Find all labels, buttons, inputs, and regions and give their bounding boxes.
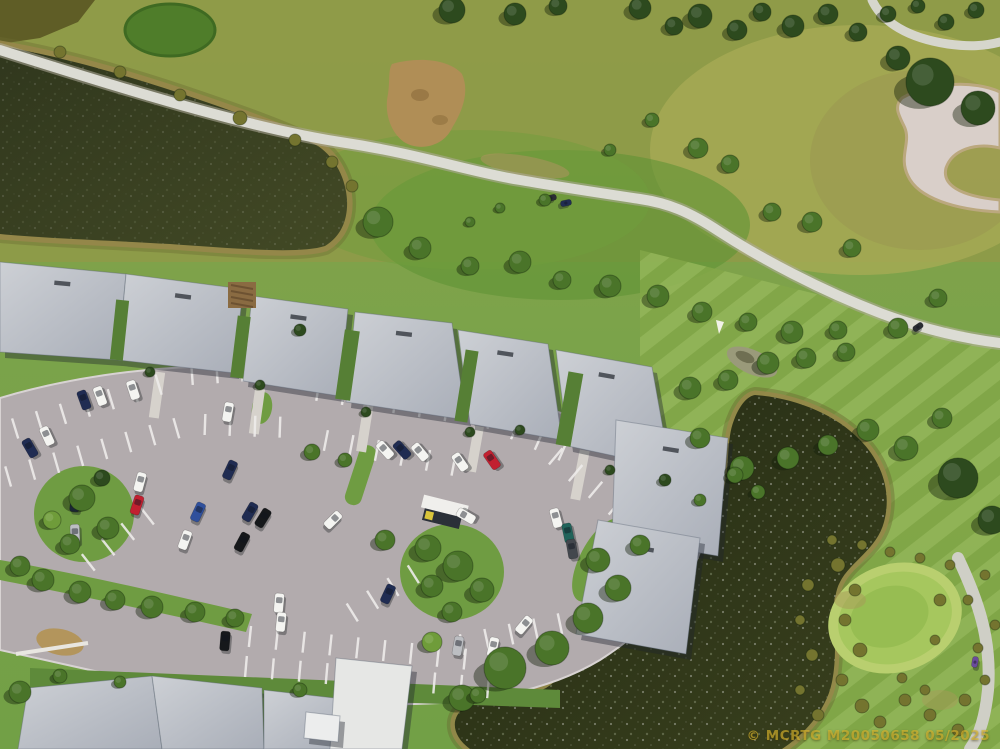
car-windshield [568, 543, 575, 550]
condo-roof [152, 676, 264, 749]
shrub [980, 675, 990, 685]
tree-highlight [452, 688, 464, 700]
shrub [934, 594, 946, 606]
tree-highlight [667, 19, 675, 27]
tree-highlight [72, 584, 82, 594]
grass-mound [125, 4, 215, 56]
shrub [839, 614, 851, 626]
tree-highlight [695, 305, 704, 314]
tree-highlight [608, 578, 620, 590]
tree-highlight [306, 446, 313, 453]
tree-highlight [661, 476, 666, 481]
tree-highlight [889, 49, 900, 60]
tree-highlight [45, 513, 53, 521]
tree-highlight [424, 578, 434, 588]
tree-highlight [13, 559, 22, 568]
tree-highlight [940, 16, 947, 23]
tree-highlight [730, 23, 739, 32]
shrub [963, 595, 973, 605]
shrub [885, 547, 895, 557]
aerial-scene [0, 0, 1000, 749]
shrub [114, 66, 126, 78]
shrub [233, 111, 247, 125]
tree-highlight [839, 345, 847, 353]
tree-highlight [472, 689, 479, 696]
tree-highlight [367, 211, 381, 225]
tree-highlight [943, 463, 961, 481]
condo-roof [458, 330, 562, 440]
shrub [874, 716, 886, 728]
shrub [930, 635, 940, 645]
condo-roof [304, 712, 340, 742]
shrub [802, 579, 814, 591]
condo-roof [18, 676, 162, 749]
shrub [980, 570, 990, 580]
tree-highlight [821, 438, 830, 447]
tree-highlight [851, 25, 859, 33]
aerial-photo: © MCRTG M20050658 05/2025 [0, 0, 1000, 749]
tree-highlight [935, 411, 944, 420]
tree-highlight [425, 635, 434, 644]
tree-highlight [780, 450, 790, 460]
shrub [806, 649, 818, 661]
tree-highlight [913, 1, 919, 7]
tree-highlight [12, 684, 22, 694]
tree-highlight [691, 7, 702, 18]
tree-highlight [784, 324, 794, 334]
tree-highlight [602, 278, 612, 288]
tree-highlight [606, 466, 611, 471]
dirt-spot [432, 115, 448, 125]
tree-highlight [633, 538, 642, 547]
shrub [855, 699, 869, 713]
tree-highlight [753, 487, 759, 493]
tree-highlight [63, 537, 72, 546]
tree-highlight [144, 599, 154, 609]
tree-highlight [755, 5, 763, 13]
car-windshield [222, 635, 229, 641]
tree-highlight [100, 520, 110, 530]
tree-highlight [496, 204, 501, 209]
stall-line [255, 416, 256, 437]
shrub [812, 709, 824, 721]
tree-highlight [729, 469, 736, 476]
tree-highlight [632, 0, 642, 10]
tree-highlight [473, 581, 484, 592]
tree-highlight [412, 240, 422, 250]
tree-highlight [362, 408, 367, 413]
tree-highlight [72, 488, 84, 500]
tree-highlight [723, 157, 731, 165]
tree-highlight [442, 0, 454, 12]
tree-highlight [765, 205, 773, 213]
shrub [920, 685, 930, 695]
tree-highlight [589, 551, 600, 562]
tree-highlight [516, 426, 521, 431]
tree-highlight [55, 671, 61, 677]
stall-line [280, 417, 281, 438]
shrub [973, 643, 983, 653]
tree-highlight [340, 455, 346, 461]
shrub [849, 584, 861, 596]
condo-roof [0, 262, 126, 360]
tree-highlight [489, 652, 508, 671]
tree-highlight [721, 373, 730, 382]
trellis [228, 282, 256, 308]
tree-highlight [965, 95, 980, 110]
tree-highlight [897, 439, 908, 450]
shrub [795, 615, 805, 625]
shrub [346, 180, 358, 192]
condo-roof [118, 274, 243, 373]
tree-highlight [295, 685, 301, 691]
tree-highlight [647, 115, 653, 121]
tree-highlight [146, 368, 151, 373]
shrub [831, 558, 845, 572]
tree-highlight [108, 593, 117, 602]
tree-highlight [418, 538, 430, 550]
tree-highlight [256, 381, 261, 386]
tree-highlight [682, 380, 692, 390]
tree-highlight [228, 611, 236, 619]
tree-highlight [96, 472, 103, 479]
tree-highlight [512, 254, 522, 264]
car-windshield [72, 528, 79, 534]
tree-highlight [799, 351, 808, 360]
tree-highlight [650, 288, 660, 298]
tree-highlight [785, 18, 795, 28]
tree-highlight [296, 326, 301, 331]
shrub [915, 553, 925, 563]
tree-highlight [445, 605, 454, 614]
shrub [924, 709, 936, 721]
tree-highlight [466, 428, 471, 433]
shrub [990, 620, 1000, 630]
shrub [857, 540, 867, 550]
tree-highlight [463, 259, 471, 267]
shrub [899, 694, 911, 706]
shrub [54, 46, 66, 58]
tree-highlight [741, 315, 749, 323]
car-windshield [225, 406, 232, 413]
tree-highlight [188, 605, 197, 614]
shrub [326, 156, 338, 168]
shrub [952, 724, 964, 736]
tree-highlight [805, 215, 814, 224]
shrub [945, 560, 955, 570]
car-windshield [276, 597, 283, 603]
tree-highlight [860, 422, 870, 432]
tree-highlight [821, 7, 830, 16]
tree-highlight [845, 241, 853, 249]
stall-line [205, 414, 206, 435]
tree-highlight [539, 635, 554, 650]
shrub [827, 535, 837, 545]
tree-highlight [760, 355, 770, 365]
car-windshield [455, 640, 462, 647]
shrub [289, 134, 301, 146]
tree-highlight [891, 321, 900, 330]
tree-highlight [466, 218, 471, 223]
tree-highlight [447, 555, 461, 569]
shrub [853, 643, 867, 657]
tree-highlight [555, 273, 563, 281]
tree-highlight [696, 496, 701, 501]
shrub [174, 89, 186, 101]
shrub [897, 673, 907, 683]
tree-highlight [691, 141, 700, 150]
condo-roof [346, 312, 466, 420]
tree-highlight [693, 431, 702, 440]
tree-highlight [541, 196, 546, 201]
tree-highlight [970, 4, 977, 11]
tree-highlight [606, 146, 611, 151]
shrub [959, 694, 971, 706]
tree-highlight [507, 6, 517, 16]
tree-highlight [931, 291, 939, 299]
shrub [795, 685, 805, 695]
dirt-spot [411, 89, 429, 101]
car-windshield [278, 616, 285, 622]
tree-highlight [912, 64, 934, 86]
tree-highlight [577, 607, 591, 621]
tree-highlight [982, 510, 995, 523]
tree-highlight [378, 533, 387, 542]
shrub [836, 674, 848, 686]
tree-highlight [35, 572, 45, 582]
tree-highlight [831, 323, 839, 331]
tree-highlight [116, 678, 121, 683]
tree-highlight [882, 8, 889, 15]
